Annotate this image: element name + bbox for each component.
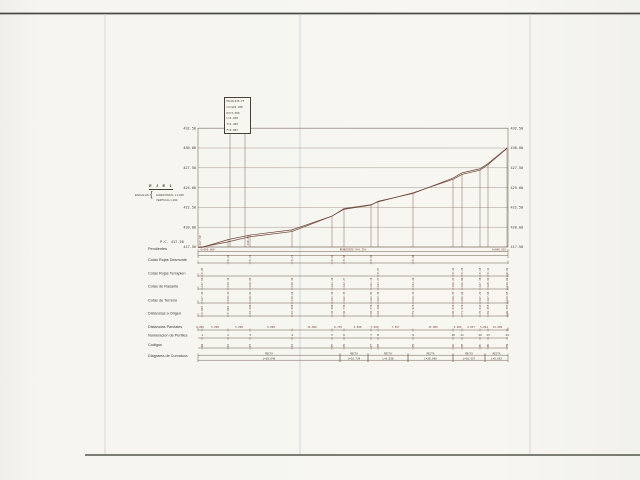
codigo-vtext: FN — [505, 343, 509, 347]
codigo-vtext: P9 — [411, 343, 415, 347]
distancia-parcial-text: 5.000 — [454, 325, 462, 329]
distancia-origen-vtext: 30.000 — [330, 304, 334, 314]
cota-roja-terraplen-vtext: 0.04 — [505, 267, 509, 274]
row-label-distancias-parciales: Distancias Parciales — [148, 325, 182, 329]
cota-rasante-vtext: 417.50 — [200, 277, 204, 287]
perfil-number: 5 — [331, 333, 333, 337]
distancia-parcial-text: 3.846 — [354, 325, 362, 329]
curvatura-length-label: L=8.062 — [491, 356, 502, 360]
distancia-origen-vtext: 76.013 — [478, 304, 482, 314]
row-label-cotas-rojas-terraplen: Cotas Rojas Terraplen — [148, 272, 186, 276]
distancia-origen-vtext: 15.000 — [290, 304, 294, 314]
cota-terreno-vtext: 427.20 — [478, 291, 482, 301]
terrain-line — [198, 148, 507, 247]
cota-rasante-vtext: 419.45 — [290, 277, 294, 287]
cota-rasante-vtext: 424.26 — [411, 277, 415, 287]
perfil-number: 3 — [249, 333, 251, 337]
distancia-parcial-text: 5.000 — [211, 325, 219, 329]
axis-tick-label-left: 430.00 — [183, 146, 196, 150]
axis-tick-label-left: 417.50 — [183, 245, 196, 249]
curvatura-recta-label: RECTA — [493, 351, 501, 355]
row-label-cotas-rojas-desmonte: Cotas Rojas Desmonte — [148, 258, 187, 262]
cota-terreno-vtext: 421.40 — [330, 291, 334, 301]
distancia-origen-vtext: 5.000 — [226, 306, 230, 314]
curvatura-recta-label: RECTA — [350, 351, 358, 355]
perfil-number: 1 — [201, 333, 203, 337]
cota-roja-desmonte-vtext: 0.08 — [342, 254, 346, 261]
codigo-vtext: IN — [200, 343, 204, 347]
row-label-codigos: Codigos — [148, 343, 162, 347]
perfil-number: 6 — [343, 333, 345, 337]
codigo-vtext: P4 — [290, 343, 294, 347]
curve-box-line: F=0.003 — [227, 128, 251, 134]
cota-roja-desmonte-vtext: 0.08 — [411, 254, 415, 261]
axis-tick-label-left: 427.50 — [183, 166, 196, 170]
scales-label: ESCALAS — [135, 193, 149, 197]
codigo-vtext: P3 — [248, 343, 252, 347]
distancia-parcial-text: 15.000 — [428, 325, 438, 329]
cota-roja-desmonte-vtext: 0.21 — [290, 254, 294, 261]
row-label-diagrama-de-curvatura: Diagrama de Curvatura — [148, 354, 188, 358]
curvatura-length-label: L=18.557 — [463, 356, 476, 360]
cota-roja-desmonte-vtext: 0.28 — [226, 254, 230, 261]
axis-tick-label-right: 420.00 — [511, 225, 524, 229]
cota-roja-terraplen-vtext: 0.14 — [486, 267, 490, 274]
scales-brace: { — [150, 190, 153, 199]
curvatura-recta-label: RECTA — [427, 351, 435, 355]
cota-roja-terraplen-vtext: 0.18 — [478, 267, 482, 274]
distancia-parcial-text: 4.037 — [467, 325, 475, 329]
distancia-origen-vtext: 81.055 — [486, 304, 490, 314]
cota-terreno-vtext: 426.66 — [460, 291, 464, 301]
distancia-parcial-text: 15.000 — [307, 325, 317, 329]
pendientes-center-text: PENDIENTE P=5.25% — [340, 248, 367, 252]
cota-terreno-vtext: 417.45 — [200, 291, 204, 301]
cota-terreno-vtext: 426.05 — [451, 291, 455, 301]
distancia-parcial-text: 5.000 — [235, 325, 243, 329]
distancia-origen-vtext: 96.055 — [505, 304, 509, 314]
cota-roja-desmonte-vtext: 0.21 — [248, 254, 252, 261]
curvatura-recta-label: RECTA — [465, 351, 473, 355]
cota-terreno-vtext: 418.43 — [226, 291, 230, 301]
distancia-parcial-text: 15.000 — [493, 325, 503, 329]
cota-roja-terraplen-vtext: 0.07 — [376, 267, 380, 274]
axis-tick-label-left: 432.50 — [183, 126, 196, 130]
scanned-profile-sheet: 432.50432.50430.00430.00427.50427.50425.… — [0, 0, 640, 480]
codigo-vtext: P5 — [330, 343, 334, 347]
codigo-vtext: PA — [451, 343, 455, 347]
axis-tick-label-right: 427.50 — [511, 166, 524, 170]
distancia-parcial-text: 0.000 — [196, 325, 204, 329]
cota-rasante-vtext: 426.21 — [451, 277, 455, 287]
cota-rasante-vtext: 422.78 — [369, 277, 373, 287]
codigo-vtext: P8 — [376, 343, 380, 347]
pendientes-left-text: 0+000.000 — [201, 248, 215, 252]
axis-tick-label-right: 422.50 — [511, 206, 524, 210]
cota-roja-terraplen-vtext: 0.20 — [460, 267, 464, 274]
perfil-number: 11 — [460, 333, 464, 337]
axis-tick-label-left: 425.00 — [183, 186, 196, 190]
grade-line — [198, 148, 507, 247]
cota-terreno-vtext: 427.90 — [486, 291, 490, 301]
station-cota-vtext: 418.80 — [246, 235, 250, 245]
codigo-vtext: P6 — [342, 343, 346, 347]
cota-terreno-vtext: 419.01 — [248, 291, 252, 301]
codigo-vtext: PB — [460, 343, 464, 347]
perfil-number: 13 — [486, 333, 490, 337]
cota-terreno-vtext: 422.84 — [369, 291, 373, 301]
cota-rasante-vtext: 418.15 — [226, 277, 230, 287]
distancia-origen-vtext: 36.730 — [342, 304, 346, 314]
cota-terreno-vtext: 423.20 — [376, 291, 380, 301]
scale-horizontal: HORIZONTAL 1:1.000 — [156, 193, 184, 197]
curvatura-length-label: L=16.739 — [348, 356, 361, 360]
axis-tick-label-left: 420.00 — [183, 225, 196, 229]
distancia-origen-vtext: 66.976 — [451, 304, 455, 314]
axis-tick-label-left: 422.50 — [183, 206, 196, 210]
cota-roja-terraplen-vtext: 0.16 — [451, 267, 455, 274]
distancia-parcial-text: 6.730 — [334, 325, 342, 329]
station-cota-vtext: 417.50 — [198, 235, 202, 245]
perfil-number: 4 — [291, 333, 293, 337]
row-label-pendientes: Pendientes — [148, 247, 167, 251]
perfil-number: 14 — [505, 333, 509, 337]
distancia-parcial-text: 5.000 — [267, 325, 275, 329]
distancia-parcial-text: 5.042 — [480, 325, 488, 329]
cota-rasante-vtext: 428.04 — [486, 277, 490, 287]
cota-roja-desmonte-vtext: 0.02 — [330, 254, 334, 261]
distancia-origen-vtext: 51.976 — [411, 304, 415, 314]
cota-rasante-vtext: 427.38 — [478, 277, 482, 287]
codigo-vtext: PC — [478, 343, 482, 347]
distancia-parcial-text: 7.567 — [392, 325, 400, 329]
curvatura-recta-label: RECTA — [265, 351, 273, 355]
axis-tick-label-right: 417.50 — [511, 245, 524, 249]
cota-rasante-vtext: 426.86 — [460, 277, 464, 287]
perfil-number: 9 — [412, 333, 414, 337]
cota-rasante-vtext: 418.80 — [248, 277, 252, 287]
cota-rasante-vtext: 421.40 — [330, 277, 334, 287]
curvatura-length-label: L=5.038 — [383, 356, 394, 360]
perfil-number: 7 — [370, 333, 372, 337]
distancia-origen-vtext: 0.000 — [200, 306, 204, 314]
row-label-cotas-de-rasante: Cotas de Rasante — [148, 285, 178, 289]
perfil-number: 10 — [451, 333, 455, 337]
cota-roja-desmonte-vtext: 0.06 — [369, 254, 373, 261]
row-label-cotas-de-terreno: Cotas de Terreno — [148, 299, 177, 303]
codigo-vtext: PD — [486, 343, 490, 347]
datum-label: P.C. 417.50 — [160, 240, 184, 244]
cota-roja-terraplen-vtext: 0.05 — [200, 267, 204, 274]
distancia-origen-vtext: 71.976 — [460, 304, 464, 314]
curvatura-length-label: L=83.046 — [263, 356, 276, 360]
codigo-vtext: P7 — [369, 343, 373, 347]
profile-drawing-canvas: 432.50432.50430.00430.00427.50427.50425.… — [0, 0, 640, 480]
cota-rasante-vtext: 429.99 — [505, 277, 509, 287]
cota-terreno-vtext: 419.66 — [290, 291, 294, 301]
scale-vertical: VERTICAL 1:100 — [156, 198, 177, 202]
axis-tick-label-right: 430.00 — [511, 146, 524, 150]
cota-rasante-vtext: 423.27 — [376, 277, 380, 287]
distancia-origen-vtext: 40.576 — [369, 304, 373, 314]
perfil-number: 2 — [227, 333, 229, 337]
perfil-number: 12 — [478, 333, 482, 337]
row-label-numeracion-de-perfiles: Numeracion de Perfiles — [148, 334, 188, 338]
distancia-parcial-text: 3.830 — [371, 325, 379, 329]
cota-terreno-vtext: 422.35 — [342, 291, 346, 301]
curvatura-length-label: L=28.098 — [424, 356, 437, 360]
vertical-curve-data-box: PK=0+036.73CV=422.268KV=3.000L=4.938T=2.… — [224, 97, 251, 134]
codigo-vtext: P2 — [226, 343, 230, 347]
cota-rasante-vtext: 422.27 — [342, 277, 346, 287]
curvatura-recta-label: RECTA — [384, 351, 392, 355]
axis-tick-label-right: 432.50 — [511, 126, 524, 130]
axis-title: E J E 1 — [149, 183, 173, 190]
perfil-number: 8 — [377, 333, 379, 337]
cota-terreno-vtext: 429.95 — [505, 291, 509, 301]
distancia-origen-vtext: 44.406 — [376, 304, 380, 314]
row-label-distancias-a-origen: Distancias a Origen — [148, 312, 181, 316]
cota-terreno-vtext: 424.34 — [411, 291, 415, 301]
axis-tick-label-right: 425.00 — [511, 186, 524, 190]
distancia-origen-vtext: 10.000 — [248, 304, 252, 314]
pendientes-right-text: 0+096.055 — [492, 248, 506, 252]
